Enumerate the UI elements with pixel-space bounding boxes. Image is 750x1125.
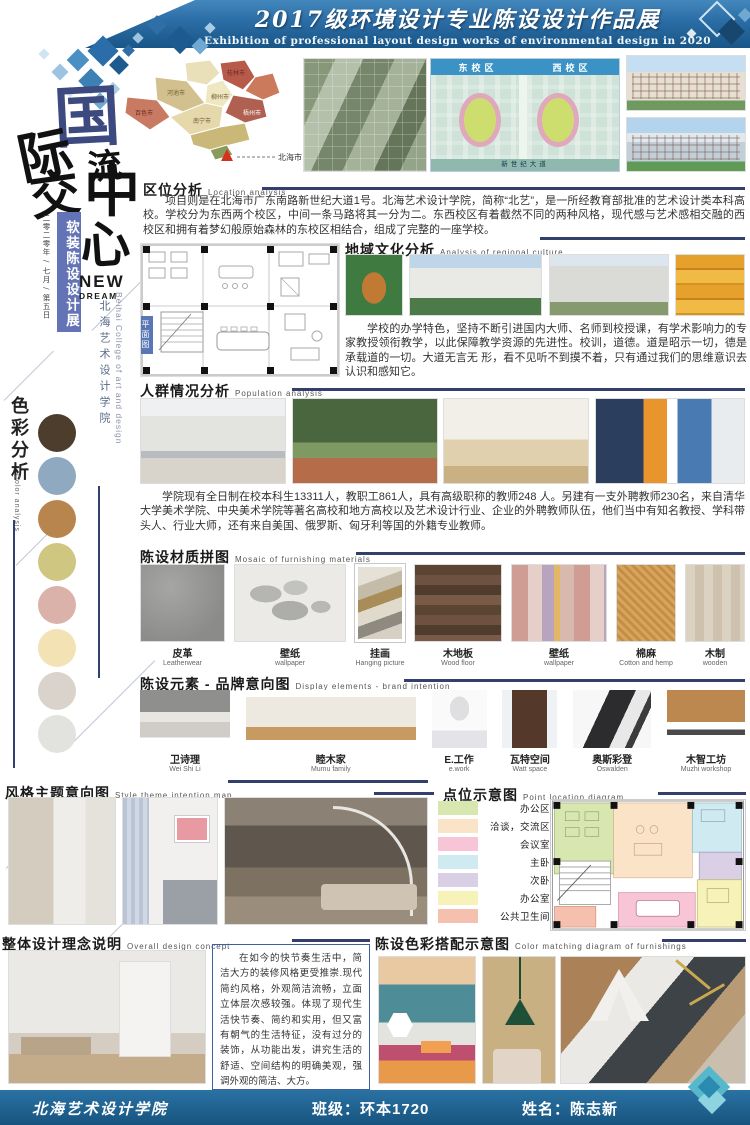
culture-photo-row bbox=[345, 254, 745, 316]
bed-shape bbox=[163, 880, 218, 924]
divider-line bbox=[404, 679, 745, 682]
exhibition-banner: 软装陈设设计展 bbox=[57, 212, 81, 332]
vertical-line-decoration bbox=[13, 520, 15, 768]
material-wood-floor bbox=[414, 564, 502, 642]
material-flatlay-photo bbox=[560, 956, 746, 1084]
college-name-english-vertical: Beihai College of art and design bbox=[114, 292, 124, 527]
material-wooden bbox=[685, 564, 745, 642]
vertical-line-decoration bbox=[98, 486, 100, 678]
student-name-value: 陈志新 bbox=[570, 1101, 618, 1118]
campus-road bbox=[519, 75, 527, 159]
population-photo-row bbox=[140, 398, 745, 484]
color-swatch bbox=[38, 543, 76, 581]
divider-line bbox=[658, 792, 746, 795]
style-photo-bedroom bbox=[122, 797, 218, 925]
color-swatch bbox=[38, 715, 76, 753]
hex-tile-shape bbox=[387, 1013, 413, 1037]
room-legend: 办公区 洽谈，交流区 会议室 主卧 次卧 办公室 公共卫生间 bbox=[438, 801, 550, 927]
culture-paragraph: 学校的办学特色，坚持不断引进国内大师、名师到校授课，有学术影响力的专家教授领衔教… bbox=[345, 322, 747, 379]
divider-line bbox=[356, 552, 745, 555]
brand-cabinet-image bbox=[502, 690, 557, 748]
calligraphy-char-xin: 心 bbox=[78, 218, 131, 271]
brand-bed-image bbox=[140, 690, 230, 748]
campus-stone-photo bbox=[345, 254, 403, 316]
tv-console-shape bbox=[21, 1037, 91, 1055]
classroom-photo bbox=[443, 398, 589, 484]
materials-row: 皮革Leatherwear 壁纸wallpaper 挂画Hanging pict… bbox=[140, 564, 745, 667]
curtain-shape bbox=[123, 798, 149, 925]
divider-line bbox=[292, 388, 745, 391]
stadium-east bbox=[459, 93, 501, 147]
legend-item: 次卧 bbox=[438, 873, 550, 887]
legend-item: 主卧 bbox=[438, 855, 550, 869]
svg-text:河池市: 河池市 bbox=[167, 89, 185, 97]
marble-chevron-shape bbox=[589, 969, 649, 1021]
brand-nightstand-image bbox=[667, 690, 745, 748]
svg-text:梧州市: 梧州市 bbox=[243, 109, 261, 117]
footer-bar: 北海艺术设计学院 班级：环本1720 姓名：陈志新 bbox=[0, 1090, 750, 1125]
legend-item: 办公区 bbox=[438, 801, 550, 815]
new-word: NEW bbox=[79, 272, 125, 292]
section-title-colormatch: 陈设色彩搭配示意图Color matching diagram of furni… bbox=[375, 934, 687, 954]
college-name-vertical: 北海艺术设计学院 bbox=[96, 300, 112, 428]
concept-text-box: 在如今的快节奏生活中，简洁大方的装修风格更受推崇.现代简约风格，外观简洁流畅，立… bbox=[212, 944, 370, 1090]
floor-plan-svg bbox=[141, 244, 339, 376]
campus-plan: 东校区 西校区 新世纪大道 bbox=[430, 58, 620, 172]
legend-item: 公共卫生间 bbox=[438, 909, 550, 923]
divider-line bbox=[262, 187, 745, 190]
guangxi-map: 桂林市 河池市 柳州市 百色市 南宁市 梧州市 北海市 bbox=[115, 55, 311, 173]
color-swatch-column bbox=[38, 414, 76, 758]
material-wallpaper-map bbox=[234, 564, 346, 642]
class-value: 环本1720 bbox=[360, 1101, 429, 1118]
poster-title: 2017级环境设计专业陈设设计作品展 bbox=[185, 2, 730, 34]
header-text: 2017级环境设计专业陈设设计作品展 Exhibition of profess… bbox=[185, 2, 730, 47]
svg-text:柳州市: 柳州市 bbox=[211, 93, 229, 101]
brand-sofa-image bbox=[246, 690, 416, 748]
plan-label: 平面图 bbox=[140, 316, 153, 354]
orange-card-shape bbox=[421, 1041, 451, 1053]
material-leather bbox=[140, 564, 225, 642]
color-swatch bbox=[38, 586, 76, 624]
divider-line bbox=[374, 792, 434, 795]
color-swatch bbox=[38, 500, 76, 538]
lamp-cord bbox=[519, 957, 521, 999]
satellite-photo bbox=[303, 58, 427, 172]
stadium-west bbox=[537, 93, 579, 147]
legend-item: 办公室 bbox=[438, 891, 550, 905]
diamond-icon bbox=[52, 64, 69, 81]
svg-text:南宁市: 南宁市 bbox=[193, 117, 211, 125]
diamond-icon bbox=[738, 8, 750, 22]
lamp-shade bbox=[505, 999, 535, 1025]
color-swatch bbox=[38, 457, 76, 495]
east-campus-label: 东校区 bbox=[458, 61, 497, 74]
divider-line bbox=[540, 237, 745, 240]
road-label: 新世纪大道 bbox=[431, 159, 619, 171]
color-swatch bbox=[38, 629, 76, 667]
beihai-label: 北海市 bbox=[278, 152, 302, 162]
point-location-plan bbox=[550, 799, 746, 931]
university-ads-collage bbox=[595, 398, 745, 484]
brands-row: 卫诗理Wei Shi Li 睦木家Mumu family E.工作e.work … bbox=[140, 690, 745, 773]
moodboard-collage-photo bbox=[378, 956, 476, 1084]
diagonal-line-decoration bbox=[4, 351, 54, 401]
material-hanging-picture bbox=[355, 564, 405, 642]
style-photo-lounge bbox=[224, 797, 428, 925]
svg-text:百色市: 百色市 bbox=[135, 109, 153, 117]
diamond-icon bbox=[38, 48, 49, 59]
campus-street-photo bbox=[409, 254, 542, 316]
brand-office-chair-image bbox=[432, 690, 487, 748]
legend-item: 会议室 bbox=[438, 837, 550, 851]
location-paragraph: 项目则是在北海市广东南路新世纪大道1号。北海艺术设计学院，简称“北艺”，是一所经… bbox=[143, 194, 745, 237]
side-table-shape bbox=[493, 1049, 541, 1083]
diamond-icon bbox=[67, 49, 90, 72]
header-bar: 2017级环境设计专业陈设设计作品展 Exhibition of profess… bbox=[0, 0, 750, 48]
footer-class: 班级：环本1720 bbox=[312, 1098, 429, 1119]
basketball-court-photo bbox=[292, 398, 438, 484]
brand-desk-image bbox=[573, 690, 651, 748]
floor-plan-drawing: 平面图 bbox=[140, 243, 340, 377]
population-paragraph: 学院现有全日制在校本科生13311人，教职工861人，具有高级职称的教师248 … bbox=[140, 490, 745, 533]
color-swatch bbox=[38, 672, 76, 710]
svg-text:桂林市: 桂林市 bbox=[227, 69, 245, 77]
books-photo bbox=[675, 254, 745, 316]
campus-header: 东校区 西校区 bbox=[431, 59, 619, 75]
west-campus-label: 西校区 bbox=[552, 61, 591, 74]
campus-facade-photo bbox=[549, 254, 669, 316]
doorway-shape bbox=[119, 961, 171, 1057]
legend-item: 洽谈，交流区 bbox=[438, 819, 550, 833]
footer-name: 姓名：陈志新 bbox=[522, 1098, 618, 1119]
pendant-lamp-photo bbox=[482, 956, 556, 1084]
material-cotton-hemp bbox=[616, 564, 676, 642]
poster: 2017级环境设计专业陈设设计作品展 Exhibition of profess… bbox=[0, 0, 750, 1125]
date-note: 二零二零年 / 七月 / 第五日 bbox=[41, 214, 52, 344]
color-swatch bbox=[38, 414, 76, 452]
material-wallpaper-arch bbox=[511, 564, 607, 642]
concept-paragraph: 在如今的快节奏生活中，简洁大方的装修风格更受推崇.现代简约风格，外观简洁流畅，立… bbox=[220, 951, 362, 1089]
footer-college-name: 北海艺术设计学院 bbox=[32, 1098, 168, 1119]
divider-line bbox=[292, 939, 370, 942]
style-photo-livingroom bbox=[8, 797, 116, 925]
color-analysis-title: 色彩分析 bbox=[6, 396, 32, 484]
wall-art bbox=[175, 816, 209, 842]
graduation-photo bbox=[140, 398, 286, 484]
brass-faucet-shape bbox=[675, 959, 711, 990]
campus-photo-stack bbox=[626, 55, 746, 172]
concept-interior-photo bbox=[8, 950, 206, 1084]
divider-line bbox=[228, 780, 428, 783]
sofa-shape bbox=[321, 884, 417, 910]
campus-gate-photo bbox=[626, 55, 746, 111]
campus-building-photo bbox=[626, 117, 746, 172]
poster-subtitle: Exhibition of professional layout design… bbox=[185, 35, 730, 47]
divider-line bbox=[662, 939, 746, 942]
